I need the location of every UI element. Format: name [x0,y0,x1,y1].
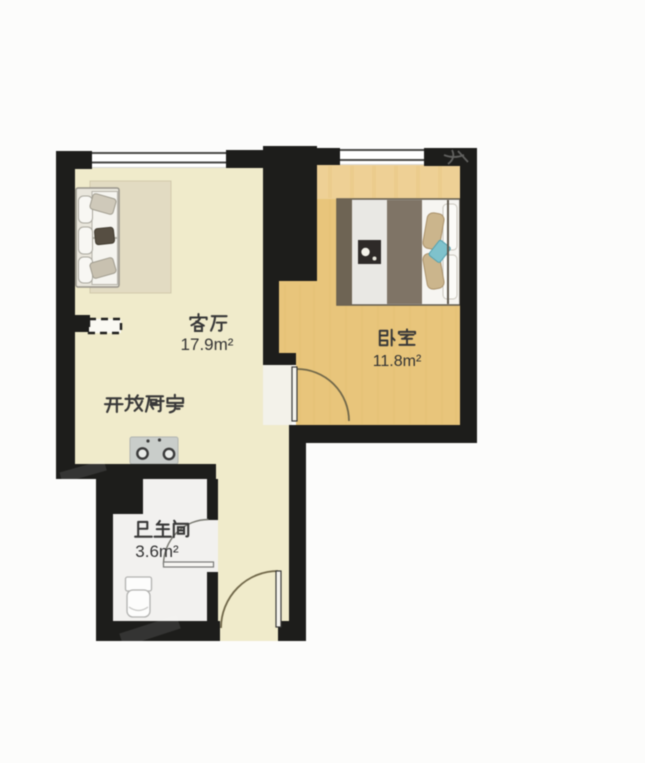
svg-text:11.8m²: 11.8m² [373,353,422,370]
svg-text:3.6m²: 3.6m² [135,542,179,561]
svg-text:17.9m²: 17.9m² [181,335,234,354]
